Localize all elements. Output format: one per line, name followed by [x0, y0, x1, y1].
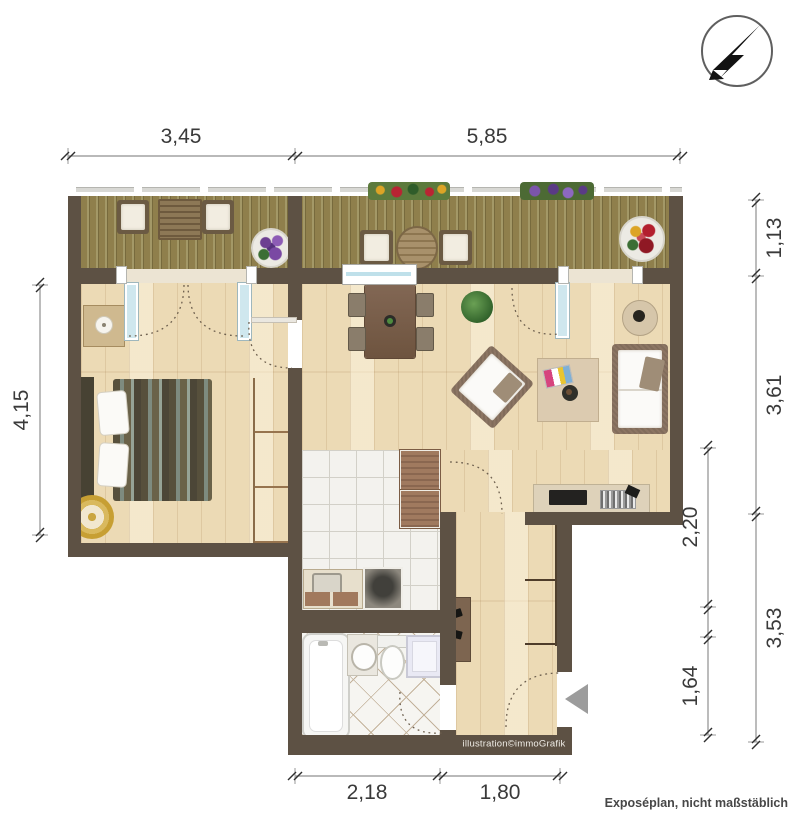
wall: [670, 268, 683, 525]
door-leaf: [251, 317, 297, 323]
toilet: [377, 635, 405, 679]
door-threshold: [567, 269, 633, 283]
hallway-wardrobe: [525, 517, 557, 646]
balcony-table: [158, 199, 202, 240]
balcony-lounger: [117, 200, 149, 234]
wall: [557, 512, 572, 672]
door-jamb: [246, 266, 257, 284]
tv: [549, 490, 587, 505]
bathtub: [302, 633, 350, 739]
wall: [440, 512, 456, 685]
dim-right-inner-1: 2,20: [679, 507, 703, 548]
stove: [363, 567, 403, 610]
door-jamb: [558, 266, 569, 284]
dining-table: [365, 285, 415, 358]
flower-box: [520, 182, 594, 200]
coffee-table: [537, 358, 599, 422]
dim-bottom-1: 2,18: [347, 781, 388, 805]
kettle-icon: [633, 310, 645, 322]
floor-plan: 3,45 5,85 2,18 1,80 4,15 1,13 3,61 3,53 …: [0, 0, 794, 830]
side-table: [622, 300, 658, 336]
wall: [68, 543, 302, 557]
dim-right-2: 3,61: [763, 375, 787, 416]
bed-headboard: [81, 377, 94, 503]
nightstand: [83, 305, 125, 347]
wall: [288, 368, 302, 755]
wall: [68, 196, 81, 556]
kitchen-cabinet: [400, 450, 440, 490]
table-plant-icon: [384, 315, 396, 327]
dining-chair: [416, 293, 434, 317]
wall: [288, 610, 456, 633]
flower-box: [368, 182, 450, 200]
door-jamb: [116, 266, 127, 284]
kitchen-cabinet: [400, 490, 440, 528]
dim-right-inner-2: 1,64: [679, 666, 703, 707]
balcony-door-leaf: [125, 283, 138, 340]
tv-sideboard: [533, 484, 650, 515]
faucet-icon: [318, 641, 328, 646]
wall: [288, 283, 302, 320]
bed: [81, 377, 212, 503]
lamp-icon: [95, 316, 113, 334]
kitchen-sink-unit: [303, 569, 363, 609]
wall: [669, 196, 683, 274]
potted-plant: [461, 291, 493, 323]
wall: [415, 268, 567, 284]
dim-bottom-2: 1,80: [480, 781, 521, 805]
balcony-lounger: [202, 200, 234, 234]
disclaimer-text: Exposéplan, nicht maßstäblich: [605, 796, 788, 810]
balcony-chair: [439, 230, 472, 265]
dim-top-1: 3,45: [161, 125, 202, 149]
entrance-arrow-icon: [565, 684, 588, 714]
window: [342, 264, 417, 285]
dim-right-1: 1,13: [763, 218, 787, 259]
dim-right-3: 3,53: [763, 608, 787, 649]
dining-chair: [348, 293, 366, 317]
dim-left-1: 4,15: [10, 390, 34, 431]
flower-pot: [251, 228, 291, 268]
flower-pot: [619, 216, 665, 262]
balcony-chair: [360, 230, 393, 265]
door-threshold: [125, 269, 247, 283]
balcony-door-leaf: [556, 283, 569, 338]
sofa: [612, 344, 668, 434]
wall: [525, 512, 683, 525]
bed-pillow: [96, 390, 130, 436]
kitchen-drawers: [305, 592, 360, 606]
credit-text: illustration©immoGrafik: [463, 739, 566, 750]
table-plant-icon: [562, 385, 578, 401]
dim-top-2: 5,85: [467, 125, 508, 149]
bed-pillow: [97, 442, 130, 488]
balcony-door-leaf: [238, 283, 251, 340]
compass-north-arrow-icon: [696, 10, 778, 92]
wall: [288, 196, 302, 274]
washbasin: [347, 634, 378, 676]
window-glass: [346, 272, 411, 276]
bed-duvet: [113, 379, 212, 501]
dining-chair: [416, 327, 434, 351]
bedroom-wardrobe: [253, 378, 290, 543]
shower: [406, 635, 443, 678]
dining-chair: [348, 327, 366, 351]
door-jamb: [632, 266, 643, 284]
